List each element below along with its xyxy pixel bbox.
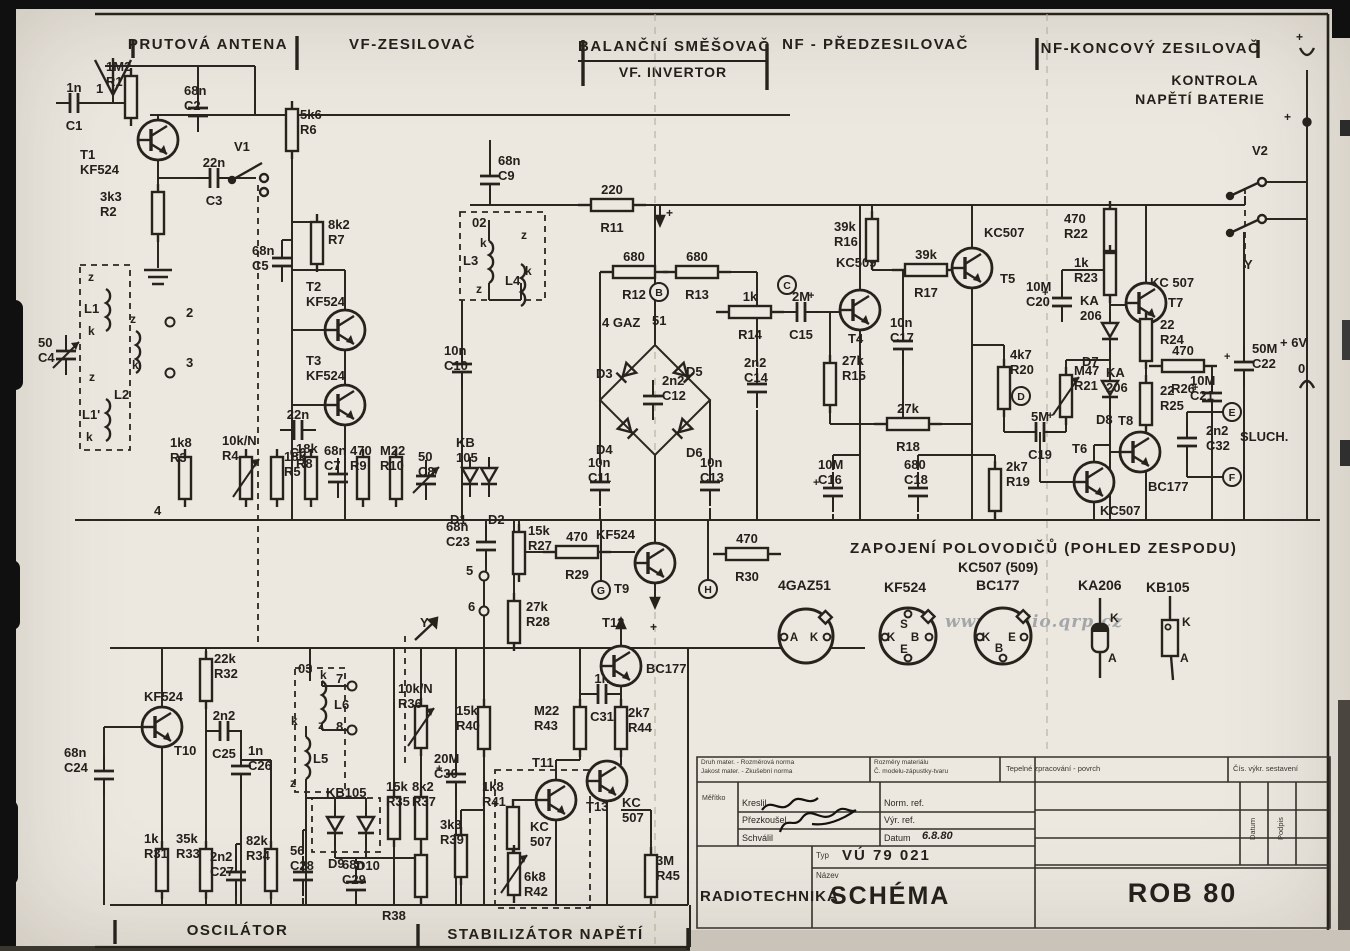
value-R30: 470	[736, 531, 758, 546]
value-C17: 10n	[890, 315, 912, 330]
component-1: 1	[96, 81, 103, 96]
component-R7: 8k2R7	[311, 214, 350, 272]
ref-105: 105	[456, 450, 478, 465]
component-L3: L3	[463, 241, 493, 283]
value-C9: 68n	[498, 153, 520, 168]
tb-typ-label: Typ	[816, 851, 829, 860]
component-R14: 1kR14	[716, 289, 784, 342]
legend-item-KC507-(509): KC507 (509)BC177KEB	[958, 559, 1038, 664]
value-L5: L5	[313, 751, 328, 766]
terminal-letter-E: E	[1228, 407, 1235, 419]
value-R22: 470	[1064, 211, 1086, 226]
component-B: B	[650, 283, 668, 301]
terminal-letter-C: C	[783, 280, 791, 292]
value-R10: M22	[380, 443, 405, 458]
component-KC507: KC507	[984, 225, 1024, 240]
ref-507: 507	[530, 834, 552, 849]
component-npn	[1074, 462, 1114, 502]
value-R44: 2k7	[628, 705, 650, 720]
component-R45: 3MR45	[645, 847, 680, 905]
value-k: k	[86, 430, 93, 444]
value-R32: 22k	[214, 651, 236, 666]
ref-R44: R44	[628, 720, 653, 735]
component-V2: V2	[1252, 143, 1268, 158]
tb-model: ROB 80	[1035, 878, 1330, 909]
legend-name-KB105: KB105	[1146, 579, 1190, 595]
ref-C2: C2	[184, 98, 201, 113]
value-R15: 27k	[842, 353, 864, 368]
ref-KF524: KF524	[306, 294, 346, 309]
ref-R34: R34	[246, 848, 271, 863]
value-KF524: T2	[306, 279, 321, 294]
value-R13: 680	[686, 249, 708, 264]
value-k: k	[480, 236, 487, 250]
value-+: +	[650, 620, 657, 634]
ref-C32: C32	[1206, 438, 1230, 453]
value-k: k	[525, 264, 532, 278]
legend-pin-B: B	[995, 643, 1003, 655]
component-R39: 3k3R39	[440, 817, 467, 885]
ref-C26: C26	[248, 758, 272, 773]
component-C11: 10nC11	[588, 455, 611, 506]
value-KF524: KF524	[144, 689, 184, 704]
legend-pin-A: A	[1108, 651, 1117, 665]
component-C28: 56C28	[290, 843, 314, 896]
component-z: z	[130, 312, 136, 326]
value-L2: L2	[114, 387, 129, 402]
value-KF524: T3	[306, 353, 321, 368]
component-G: G	[592, 581, 610, 599]
ref-R31: R31	[144, 846, 168, 861]
component-k: k	[320, 668, 327, 682]
ref-R13: R13	[685, 287, 709, 302]
component-R35: 15kR35	[386, 779, 410, 847]
component-6: 6	[468, 599, 489, 616]
component-R21: M47R21	[1053, 363, 1099, 425]
ref-D5: D5	[686, 364, 703, 379]
component-z: z	[290, 776, 296, 790]
component-R9: 470R9	[350, 443, 372, 507]
component-V1: V1	[234, 139, 250, 154]
value-206: KA	[1080, 293, 1099, 308]
value-L3: L3	[463, 253, 478, 268]
component-npn	[840, 290, 880, 330]
ref-R3: R3	[170, 450, 187, 465]
ref-R30: R30	[735, 569, 759, 584]
ref-C23: C23	[446, 534, 470, 549]
misc-glyphs	[95, 48, 1314, 640]
tb-norm-ref: Norm. ref.	[884, 798, 924, 808]
component-SLUCH.: SLUCH.	[1240, 429, 1288, 444]
component-+: +	[650, 620, 657, 634]
value-C19: 5M	[1031, 409, 1049, 424]
value-R12: 680	[623, 249, 645, 264]
legend-item-KA206: KA206KA	[1078, 577, 1122, 678]
ref-R40: R40	[456, 718, 480, 733]
tb-nazev-label: Název	[816, 871, 839, 880]
value-R14: 1k	[743, 289, 758, 304]
ref-C27: C27	[210, 864, 234, 879]
component-03: 03	[298, 661, 312, 676]
component-T5: T5	[1000, 271, 1015, 286]
value-C22: 50M	[1252, 341, 1277, 356]
value-4: 4	[154, 503, 162, 518]
value-C27: 2n2	[210, 849, 232, 864]
component-C9: 68nC9	[480, 153, 520, 200]
tb-vyr-ref: Výr. ref.	[884, 815, 915, 825]
value-z: z	[476, 282, 482, 296]
ref-R7: R7	[328, 232, 345, 247]
schematic-canvas: 11nC11M2R168nC2T1KF52422nC3V13k3R25k6R66…	[0, 0, 1350, 951]
component-k: k	[480, 236, 487, 250]
value-z: z	[290, 776, 296, 790]
value-C8: 50	[418, 449, 432, 464]
component-npn	[536, 780, 576, 820]
value-L1: L1	[84, 301, 99, 316]
ref-507: 507	[622, 810, 644, 825]
ref-C31: C31	[590, 709, 614, 724]
value-C1: 1n	[66, 80, 81, 95]
value-R8: 18k	[296, 441, 318, 456]
component-z: z	[476, 282, 482, 296]
generated-components: 11nC11M2R168nC2T1KF52422nC3V13k3R25k6R66…	[38, 30, 1307, 923]
component-R36: 10k/NR36	[398, 681, 434, 756]
ref-D3: D3	[596, 366, 613, 381]
component-R27: 15kR27	[513, 523, 552, 582]
component-C13: 10nC13	[700, 455, 724, 506]
ref-C15: C15	[789, 327, 813, 342]
value-k: k	[88, 324, 95, 338]
ref-R23: R23	[1074, 270, 1098, 285]
legend-pin-K: K	[887, 632, 896, 644]
value-R26: 470	[1172, 343, 1194, 358]
value-R2: 3k3	[100, 189, 122, 204]
value-C7: 68n	[324, 443, 346, 458]
component-npn	[601, 646, 641, 686]
value-C12: 2n2	[662, 373, 684, 388]
component-k: k	[525, 264, 532, 278]
component-T8: T8	[1118, 413, 1133, 428]
component-105: KB105	[456, 435, 478, 465]
ref-R35: R35	[386, 794, 410, 809]
value-507: KC	[530, 819, 549, 834]
component-C18: 680C18	[904, 457, 928, 512]
component-3: 3	[166, 355, 194, 378]
terminal-letter-F: F	[1229, 472, 1236, 484]
tb-cis: Čís. výkr. sestavení	[1233, 764, 1298, 773]
value-2: 2	[186, 305, 193, 320]
ref-R12: R12	[622, 287, 646, 302]
component-T10: T10	[174, 743, 196, 758]
value-R7: 8k2	[328, 217, 350, 232]
value-R37: 8k2	[412, 779, 434, 794]
value-C14: 2n2	[744, 355, 766, 370]
component-R4: 10k/NR4	[222, 433, 259, 507]
component-H: H	[699, 580, 717, 598]
value-C13: 10n	[700, 455, 722, 470]
ref-C12: C12	[662, 388, 686, 403]
value-BC177: BC177	[1148, 479, 1188, 494]
value-3: 3	[186, 355, 193, 370]
component-C14: 2n2C14	[744, 355, 769, 408]
value-C26: 1n	[248, 743, 263, 758]
component-k: k	[88, 324, 95, 338]
component-L5: L5	[306, 737, 328, 779]
component-C30: +20MC30	[434, 751, 466, 798]
value-R31: 1k	[144, 831, 159, 846]
value-1: 1	[96, 81, 103, 96]
tb-prezkousel: Přezkoušel	[742, 815, 787, 825]
value-R41: 1k8	[482, 779, 504, 794]
component-KB105: KB105	[326, 785, 366, 800]
value-206: KA	[1106, 365, 1125, 380]
ref-C9: C9	[498, 168, 515, 183]
component-z: z	[521, 228, 527, 242]
value-Y: Y	[1244, 257, 1253, 272]
ref-D2: D2	[488, 512, 505, 527]
ref-R41: R41	[482, 794, 506, 809]
ref-R45: R45	[656, 868, 680, 883]
ref-R19: R19	[1006, 474, 1030, 489]
ref-C18: C18	[904, 472, 928, 487]
switch-v2-icon	[1230, 182, 1260, 233]
value-z: z	[130, 312, 136, 326]
schematic-scan-page: PRUTOVÁ ANTENA VF-ZESILOVAČ BALANČNÍ SMĚ…	[0, 0, 1350, 951]
value-R36: 10k/N	[398, 681, 433, 696]
component-T4: T4	[848, 331, 864, 346]
value-C18: 680	[904, 457, 926, 472]
ref-R10: R10	[380, 458, 404, 473]
ref-R29: R29	[565, 567, 589, 582]
component-7: 7	[336, 671, 357, 691]
component-E: E	[1223, 403, 1241, 421]
ref-C4: C4	[38, 350, 55, 365]
value-C3: 22n	[203, 155, 225, 170]
value-L6: L6	[334, 697, 349, 712]
value-C10: 10n	[444, 343, 466, 358]
value-R34: 82k	[246, 833, 268, 848]
ref-C30: C30	[434, 766, 458, 781]
component-T12: T12	[602, 615, 624, 630]
component-+: +	[666, 206, 673, 220]
ref-R20: R20	[1010, 362, 1034, 377]
component-KC507: KC507	[1100, 503, 1140, 518]
ref-C24: C24	[64, 760, 89, 775]
value-z: z	[318, 718, 324, 732]
component-F: F	[1223, 468, 1241, 486]
value-V1: V1	[234, 139, 250, 154]
component-4: 4	[154, 503, 162, 518]
value-z: z	[88, 270, 94, 284]
value-51: 51	[652, 313, 666, 328]
value-k: k	[320, 668, 327, 682]
tb-modelu: Č. modelu-zápustky-tvaru	[874, 768, 948, 775]
value-C21: 10M	[1190, 373, 1215, 388]
component-C21: +10MC21	[1190, 373, 1222, 417]
value-C2: 68n	[184, 83, 206, 98]
ref-R11: R11	[600, 220, 623, 235]
terminal-letter-G: G	[597, 585, 605, 597]
value-k: k	[291, 714, 298, 728]
legend-pin-A: A	[790, 632, 798, 644]
component-R10: M22R10	[380, 443, 405, 507]
value-7: 7	[336, 671, 343, 686]
tb-kreslil: Kreslil	[742, 798, 767, 808]
value-SLUCH.: SLUCH.	[1240, 429, 1288, 444]
legend-name-KC507 (509): KC507 (509)	[958, 559, 1038, 575]
ref-R17: R17	[914, 285, 938, 300]
ref-R28: R28	[526, 614, 550, 629]
value-T12: T12	[602, 615, 624, 630]
ref-C1: C1	[66, 118, 83, 133]
component-z: z	[89, 370, 95, 384]
component-C8: 50C8	[413, 449, 439, 500]
ref-R16: R16	[834, 234, 858, 249]
ref-R4: R4	[222, 448, 239, 463]
component-R18: 27kR18	[874, 401, 942, 454]
value-KB105: KB105	[326, 785, 366, 800]
ref-R32: R32	[214, 666, 238, 681]
component-z: z	[318, 718, 324, 732]
value-C23: 68n	[446, 519, 468, 534]
ref-R18: R18	[896, 439, 920, 454]
value-R9: 470	[350, 443, 372, 458]
value-5: 5	[466, 563, 473, 578]
value-R4: 10k/N	[222, 433, 257, 448]
component-npn	[1120, 432, 1160, 472]
component-npn	[635, 543, 675, 583]
legend-pin-E: E	[900, 644, 908, 656]
tb-typ-value: VÚ 79 021	[842, 847, 931, 864]
ref-C29: C29	[342, 872, 366, 887]
value-C4: 50	[38, 335, 52, 350]
ref-R27: R27	[528, 538, 552, 553]
legend-pin-B: B	[911, 632, 919, 644]
component-R19: 2k7R19	[989, 459, 1030, 519]
legend-item-KB105: KB105KA	[1146, 579, 1191, 680]
value-R40: 15k	[456, 703, 478, 718]
legend-pin-E: E	[1008, 632, 1016, 644]
component-R22: 470R22	[1064, 201, 1116, 259]
component-C: C	[778, 276, 796, 294]
value-R18: 27k	[897, 401, 919, 416]
legend-name2-BC177: BC177	[976, 577, 1020, 593]
component-C2: 68nC2	[184, 83, 208, 132]
value-T10: T10	[174, 743, 196, 758]
signature-kreslil	[762, 798, 818, 810]
tb-podpis-rot: Podpis	[1276, 817, 1285, 840]
component-T9: T9	[614, 581, 629, 596]
component-4-GAZ: 4 GAZ	[602, 315, 640, 330]
value-R35: 15k	[386, 779, 408, 794]
component-2: 2	[166, 305, 194, 327]
component-R2: 3k3R2	[100, 184, 164, 242]
component-R28: 27kR28	[508, 593, 550, 651]
component-C22: +50MC22	[1224, 341, 1277, 386]
ref-206: 206	[1080, 308, 1102, 323]
ref-C22: C22	[1252, 356, 1276, 371]
value-02: 02	[472, 215, 486, 230]
terminal-letter-D: D	[1017, 391, 1025, 403]
component-C26: 1nC26	[231, 743, 272, 790]
value-R6: 5k6	[300, 107, 322, 122]
legend-name-KA206: KA206	[1078, 577, 1122, 593]
ref-C28: C28	[290, 858, 314, 873]
tb-datum-value: 6.8.80	[922, 830, 953, 842]
tb-druh: Druh mater. - Rozměrová norma	[701, 759, 794, 766]
value-KC507: KC507	[1100, 503, 1140, 518]
component-T6: T6	[1072, 441, 1087, 456]
ref-R25: R25	[1160, 398, 1184, 413]
component-T11: T11	[532, 755, 554, 770]
component-206: KA206	[1080, 293, 1102, 323]
component-KF524: T3KF524	[306, 353, 365, 425]
value-4-GAZ: 4 GAZ	[602, 315, 640, 330]
component-8: 8	[336, 719, 357, 735]
component-+: +	[1284, 110, 1291, 124]
value-R1: 1M2	[106, 59, 131, 74]
value-T11: T11	[532, 755, 554, 770]
component-R31: 1kR31	[144, 831, 168, 899]
component-C4: 50C4	[38, 335, 79, 375]
value-T8: T8	[1118, 413, 1133, 428]
ref-R39: R39	[440, 832, 464, 847]
legend-pin-K: K	[1182, 615, 1191, 629]
value-R25: 22	[1160, 383, 1174, 398]
value-R42: 6k8	[524, 869, 546, 884]
value-z: z	[89, 370, 95, 384]
ref-KF524: KF524	[306, 368, 346, 383]
value-0: 0	[1298, 361, 1305, 376]
tb-tepelne: Tepelné zpracování - povrch	[1006, 764, 1100, 773]
value-KC507: KC507	[984, 225, 1024, 240]
component-KF524: KF524	[144, 689, 184, 704]
ref-R33: R33	[176, 846, 200, 861]
value-k: k	[132, 358, 139, 372]
ref-R21: R21	[1074, 378, 1098, 393]
ref-R42: R42	[524, 884, 548, 899]
terminal-letter-H: H	[704, 584, 712, 596]
ref-C17: C17	[890, 330, 914, 345]
value-T6: T6	[1072, 441, 1087, 456]
value-R20: 4k7	[1010, 347, 1032, 362]
ref-R38: R38	[382, 908, 406, 923]
ref-R9: R9	[350, 458, 367, 473]
legend-item-4GAZ51: 4GAZ51AK	[778, 577, 833, 663]
ref-C19: C19	[1028, 447, 1052, 462]
component-C25: 2n2C25	[206, 708, 242, 761]
value-KF524: KF524	[596, 527, 636, 542]
tb-schvalil: Schválil	[742, 833, 773, 843]
component-R30: 470R30	[713, 531, 781, 584]
value-R39: 3k3	[440, 817, 462, 832]
component-507: KC507	[622, 795, 644, 825]
component-npn	[142, 707, 182, 747]
value-R33: 35k	[176, 831, 198, 846]
component-C1: 1nC1	[56, 80, 92, 133]
value-BC177: BC177	[646, 661, 686, 676]
component-+-6V: + 6V	[1280, 335, 1307, 350]
ref-R14: R14	[738, 327, 763, 342]
ref-C10: C10	[444, 358, 468, 373]
ref-R15: R15	[842, 368, 866, 383]
value-R3: 1k8	[170, 435, 192, 450]
component-R13: 680R13	[663, 249, 731, 302]
component-R6: 5k6R6	[286, 101, 322, 159]
component-R44: 2k7R44	[615, 699, 653, 757]
value-L1': L1'	[82, 407, 100, 422]
legend-pin-K: K	[982, 632, 991, 644]
